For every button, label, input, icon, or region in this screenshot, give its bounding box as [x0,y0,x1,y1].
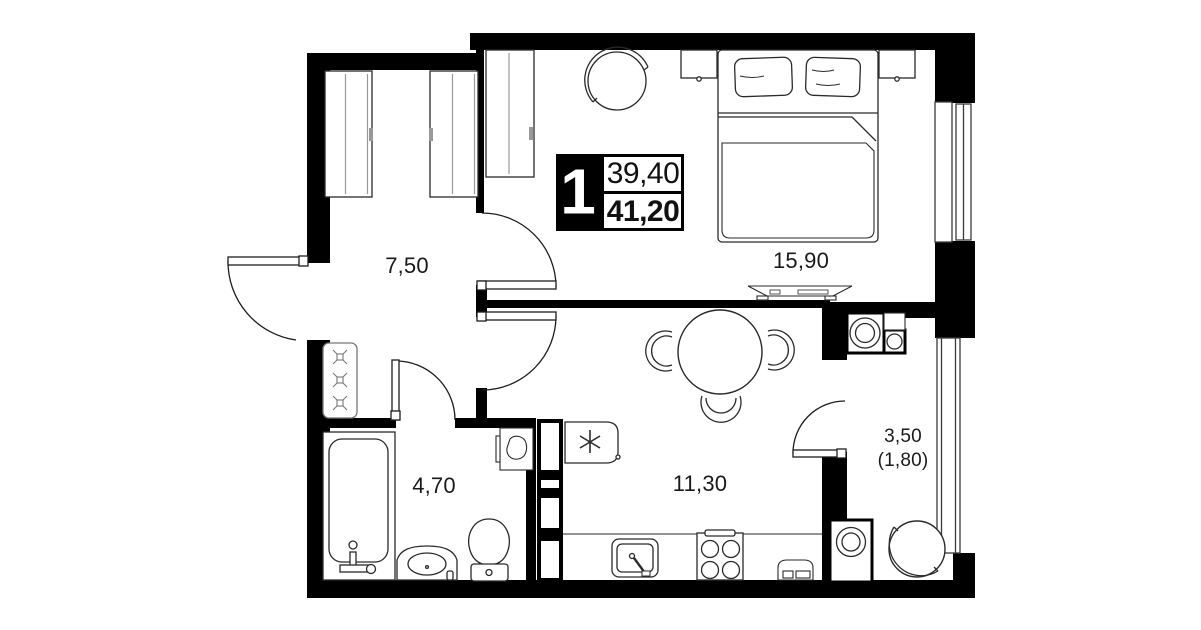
radiator-icon [778,560,813,580]
corner-shelf-icon [496,428,533,470]
nightstand-icon [681,50,717,81]
kitchen-door-swing-icon [477,312,556,390]
bathroom-fixtures [323,428,533,581]
room-label-balcony: 3,50 [884,426,922,448]
bathtub-icon [323,432,395,580]
washing-machine-icon [830,520,872,582]
bathroom-door-swing-icon [391,360,455,420]
double-bed-icon [718,50,878,242]
duct-shaft-icon [537,421,563,580]
entrance-door-swing-icon [228,256,308,340]
round-armchair-icon [585,47,648,110]
room-label-kitchen: 11,30 [673,471,727,497]
bedroom-window-icon [935,102,971,242]
room-label-hallway: 7,50 [385,253,429,279]
unit-rooms-count: 1 [560,155,596,229]
balcony-door-swing-icon [793,401,846,458]
dining-table-icon [678,310,762,394]
bedroom-door-swing-icon [477,213,556,290]
vanity-sink-icon [397,546,457,580]
bedroom-furniture [486,47,915,300]
unit-living-area: 39,40 [607,157,680,191]
round-chair-icon [889,521,945,577]
room-label-balcony-reduced: (1,80) [878,450,929,472]
radiator-icon [323,343,357,418]
wardrobe-icon [486,50,534,177]
unit-total-area: 41,20 [607,195,680,229]
wardrobe-icon [325,71,373,197]
toilet-icon [469,519,510,581]
balcony-window-icon [937,338,960,553]
floor-plan-canvas: 7,50 15,90 4,70 11,30 3,50 (1,80) 1 39,4… [0,0,1201,630]
floor-plan-drawing [0,0,1201,630]
fridge-snowflake-icon [565,422,620,463]
hallway-furniture [323,71,478,418]
stove-icon [697,530,743,580]
wardrobe-icon [429,71,478,197]
chair-icon [646,331,672,371]
pillow-icon [805,57,860,97]
washing-machine-icon [847,313,884,353]
chair-icon [701,396,741,422]
kitchen-furniture [563,310,822,580]
chair-icon [768,330,794,370]
room-label-bathroom: 4,70 [412,473,456,499]
tv-stand-icon [748,286,852,300]
dryer-icon [884,313,905,353]
sink-icon [612,539,658,577]
nightstand-icon [879,50,915,81]
room-label-bedroom: 15,90 [773,248,829,274]
